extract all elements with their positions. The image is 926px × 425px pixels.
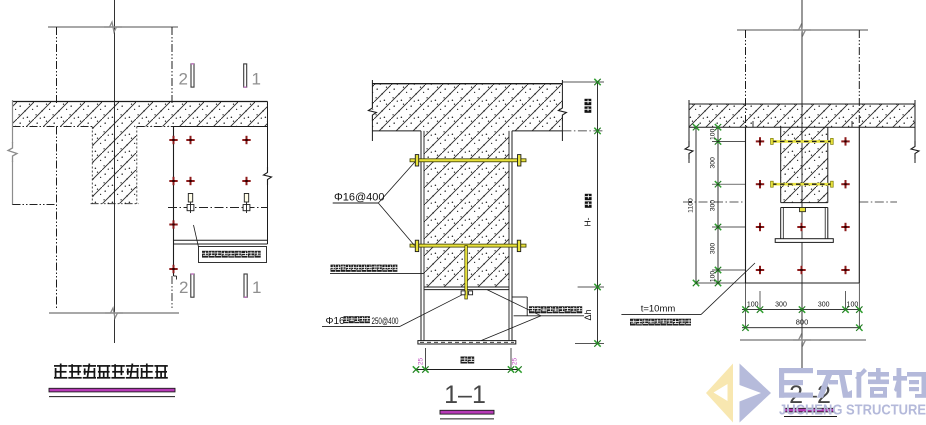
svg-text:25: 25 [418, 358, 425, 366]
svg-text:100: 100 [847, 301, 859, 308]
svg-text:1: 1 [252, 278, 261, 297]
svg-text:300: 300 [775, 301, 787, 308]
svg-text:Φ16@400: Φ16@400 [334, 191, 385, 203]
svg-text:t=10mm: t=10mm [641, 304, 676, 315]
svg-text:Δh: Δh [583, 309, 593, 320]
svg-text:300: 300 [710, 200, 717, 212]
svg-text:1100: 1100 [688, 198, 695, 213]
svg-text:H-: H- [583, 217, 593, 226]
svg-text:Φ16: Φ16 [326, 316, 346, 327]
svg-text:250@400: 250@400 [372, 316, 399, 326]
svg-text:100: 100 [710, 271, 717, 283]
svg-text:300: 300 [818, 301, 830, 308]
svg-text:300: 300 [710, 243, 717, 255]
svg-text:1–1: 1–1 [444, 381, 486, 409]
svg-text:100: 100 [710, 128, 717, 140]
svg-text:100: 100 [747, 301, 759, 308]
svg-text:300: 300 [710, 157, 717, 169]
svg-text:1: 1 [252, 70, 261, 89]
svg-text:JUCHENG STRUCTURE: JUCHENG STRUCTURE [779, 402, 926, 419]
svg-text:2: 2 [179, 278, 188, 297]
svg-text:800: 800 [796, 318, 809, 327]
svg-text:25: 25 [512, 358, 519, 366]
svg-text:2: 2 [179, 70, 188, 89]
